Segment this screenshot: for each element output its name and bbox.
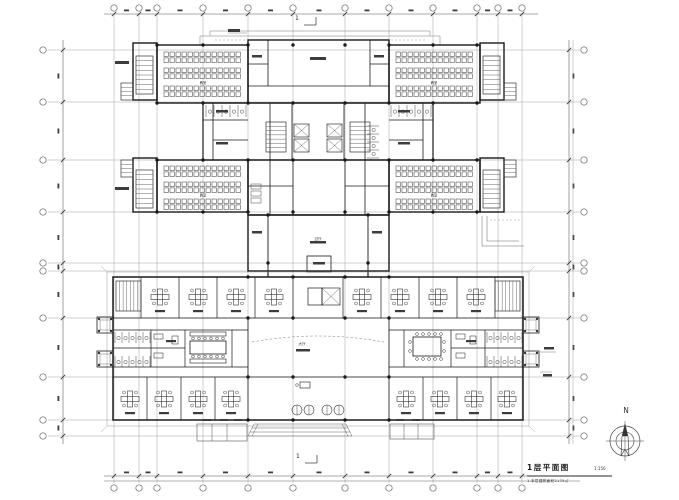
dim-text xyxy=(146,10,151,12)
desk xyxy=(206,188,210,193)
column xyxy=(266,261,269,264)
chair xyxy=(411,391,414,394)
desk xyxy=(462,74,466,79)
desk xyxy=(468,188,472,193)
desk xyxy=(164,92,168,97)
column xyxy=(475,158,478,161)
grid-bubble xyxy=(154,5,160,11)
desk xyxy=(236,182,240,187)
desk xyxy=(402,205,406,210)
porch-column xyxy=(524,330,526,332)
wc-fixture xyxy=(145,360,148,363)
grid-bubble xyxy=(40,157,46,163)
desk xyxy=(402,92,406,97)
porch-column xyxy=(524,364,526,366)
desk xyxy=(212,74,216,79)
classroom-label: 教室 xyxy=(431,193,437,198)
office-desk xyxy=(229,391,234,407)
desk xyxy=(426,58,430,63)
chair xyxy=(416,358,419,361)
desk xyxy=(438,205,442,210)
desk xyxy=(188,182,192,187)
stair-tower xyxy=(480,158,504,212)
desk xyxy=(468,74,472,79)
porch-column xyxy=(536,330,538,332)
desk xyxy=(176,52,180,57)
desk xyxy=(468,205,472,210)
wc-fixture xyxy=(372,152,375,155)
desk xyxy=(408,92,412,97)
office-desk xyxy=(151,295,169,300)
grid-bubble xyxy=(581,209,587,215)
column xyxy=(155,101,158,104)
desk xyxy=(396,166,400,171)
chair xyxy=(224,391,227,394)
chair xyxy=(399,391,402,394)
desk xyxy=(200,205,204,210)
desk xyxy=(200,86,204,91)
wc-fixture xyxy=(417,110,420,113)
text-smudge xyxy=(395,310,405,312)
chair xyxy=(479,404,482,407)
drawing-scale: 1:150 xyxy=(594,466,606,471)
fixture xyxy=(251,191,261,196)
chair xyxy=(422,333,425,336)
desk xyxy=(164,86,168,91)
text-smudge xyxy=(216,142,228,145)
chair xyxy=(169,404,172,407)
chair xyxy=(405,289,408,292)
desk xyxy=(444,68,448,73)
desk xyxy=(218,74,222,79)
desk xyxy=(212,199,216,204)
office-desk xyxy=(227,295,245,300)
desk xyxy=(432,205,436,210)
chair xyxy=(229,289,232,292)
grid-bubble xyxy=(581,157,587,163)
dim-text xyxy=(365,10,370,12)
porch-column xyxy=(536,352,538,354)
desk xyxy=(408,58,412,63)
desk xyxy=(236,58,240,63)
porch-column xyxy=(98,352,100,354)
desk xyxy=(426,188,430,193)
desk xyxy=(402,68,406,73)
column xyxy=(246,210,249,213)
desk xyxy=(444,86,448,91)
chair xyxy=(191,391,194,394)
column xyxy=(366,213,369,216)
grid-bubble xyxy=(581,47,587,53)
grid-bubble xyxy=(581,315,587,321)
chair xyxy=(355,302,358,305)
desk xyxy=(444,58,448,63)
column xyxy=(343,158,346,161)
column xyxy=(387,418,390,421)
desk xyxy=(432,58,436,63)
column xyxy=(387,210,390,213)
desk xyxy=(426,52,430,57)
grid-bubble xyxy=(290,485,296,491)
desk xyxy=(206,68,210,73)
desk xyxy=(468,52,472,57)
desk xyxy=(414,172,418,177)
desk xyxy=(218,86,222,91)
desk xyxy=(402,52,406,57)
desk xyxy=(194,182,198,187)
desk xyxy=(170,86,174,91)
desk xyxy=(420,74,424,79)
desk xyxy=(396,92,400,97)
text-smudge xyxy=(226,412,236,414)
column xyxy=(291,316,294,319)
desk xyxy=(402,74,406,79)
desk xyxy=(236,199,240,204)
porch-column xyxy=(524,318,526,320)
chair xyxy=(153,302,156,305)
desk xyxy=(164,74,168,79)
wc-fixture xyxy=(503,336,506,339)
desk xyxy=(176,74,180,79)
wc-fixture xyxy=(496,336,499,339)
column xyxy=(387,375,390,378)
desk xyxy=(236,74,240,79)
desk xyxy=(182,172,186,177)
column xyxy=(155,43,158,46)
grid-bubble xyxy=(495,485,501,491)
desk xyxy=(182,188,186,193)
desk xyxy=(188,188,192,193)
chair xyxy=(279,302,282,305)
desk xyxy=(450,86,454,91)
wc-fixture xyxy=(117,360,120,363)
desk xyxy=(414,188,418,193)
dim-text xyxy=(485,10,490,12)
chair xyxy=(169,391,172,394)
desk xyxy=(224,86,228,91)
chair xyxy=(135,404,138,407)
desk xyxy=(420,58,424,63)
grid-bubble xyxy=(154,485,160,491)
desk xyxy=(164,68,168,73)
desk xyxy=(396,205,400,210)
desk xyxy=(236,86,240,91)
text-smudge xyxy=(433,310,443,312)
dim-text xyxy=(58,265,60,270)
desk xyxy=(432,68,436,73)
grid-bubble xyxy=(581,433,587,439)
wc-fixture xyxy=(208,110,211,113)
column xyxy=(291,43,294,46)
column xyxy=(201,43,204,46)
grid-bubble xyxy=(200,485,206,491)
desk xyxy=(176,68,180,73)
drawing-title: 1层平面图 xyxy=(527,462,570,473)
column xyxy=(343,101,346,104)
desk xyxy=(468,199,472,204)
desk xyxy=(438,74,442,79)
desk xyxy=(420,205,424,210)
desk xyxy=(236,166,240,171)
desk xyxy=(218,58,222,63)
chair xyxy=(165,289,168,292)
desk xyxy=(420,52,424,57)
text-smudge xyxy=(220,419,228,421)
desk xyxy=(444,52,448,57)
chair xyxy=(165,302,168,305)
desk xyxy=(462,92,466,97)
desk xyxy=(456,58,460,63)
section-marker-top: 1 xyxy=(295,15,299,22)
desk xyxy=(224,92,228,97)
desk xyxy=(408,86,412,91)
desk xyxy=(438,182,442,187)
desk xyxy=(182,74,186,79)
text-smudge xyxy=(310,241,326,244)
porch-column xyxy=(536,364,538,366)
chair xyxy=(467,391,470,394)
desk xyxy=(188,58,192,63)
desk xyxy=(188,52,192,57)
desk xyxy=(462,205,466,210)
grid-bubble xyxy=(111,5,117,11)
grid-bubble xyxy=(40,209,46,215)
dot xyxy=(296,384,299,387)
desk xyxy=(450,58,454,63)
column xyxy=(387,43,390,46)
grid-bubble xyxy=(245,485,251,491)
office-desk xyxy=(467,295,485,300)
desk xyxy=(176,172,180,177)
side-steps xyxy=(197,424,247,441)
chair xyxy=(267,289,270,292)
chair xyxy=(467,404,470,407)
dim-text xyxy=(58,396,60,401)
chair xyxy=(443,341,446,344)
desk xyxy=(462,86,466,91)
desk xyxy=(462,182,466,187)
dim-text xyxy=(58,345,60,350)
fixture xyxy=(154,353,163,358)
desk xyxy=(194,68,198,73)
office-desk xyxy=(265,295,283,300)
dim-text xyxy=(58,74,60,79)
desk xyxy=(200,172,204,177)
dim-text xyxy=(453,472,458,474)
desk xyxy=(432,188,436,193)
desk xyxy=(230,86,234,91)
office-desk xyxy=(397,397,415,402)
desk xyxy=(402,58,406,63)
desk xyxy=(468,86,472,91)
desk xyxy=(182,92,186,97)
dim-text xyxy=(268,472,273,474)
office-desk xyxy=(189,295,207,300)
chair xyxy=(367,302,370,305)
desk xyxy=(444,205,448,210)
desk xyxy=(444,166,448,171)
conference-table xyxy=(190,341,226,354)
chair xyxy=(367,289,370,292)
desk xyxy=(414,86,418,91)
grid-bubble xyxy=(245,5,251,11)
fixture xyxy=(251,184,261,189)
desk xyxy=(414,92,418,97)
desk xyxy=(396,199,400,204)
column xyxy=(201,158,204,161)
office-desk xyxy=(189,397,207,402)
grid-bubble xyxy=(581,374,587,380)
wc-fixture xyxy=(372,144,375,147)
chair xyxy=(393,302,396,305)
office-desk xyxy=(498,397,516,402)
dim-text xyxy=(317,472,322,474)
fixture xyxy=(154,334,163,339)
dim-text xyxy=(58,426,60,431)
desk xyxy=(420,92,424,97)
desk xyxy=(224,172,228,177)
office-desk xyxy=(404,391,409,407)
text-smudge xyxy=(313,262,325,265)
desk xyxy=(182,52,186,57)
dim-text xyxy=(485,472,490,474)
column xyxy=(201,210,204,213)
dim-text xyxy=(573,129,575,134)
desk xyxy=(438,199,442,204)
column xyxy=(475,101,478,104)
porch-column xyxy=(536,318,538,320)
desk xyxy=(438,86,442,91)
desk xyxy=(170,74,174,79)
desk xyxy=(426,199,430,204)
chair xyxy=(409,350,412,353)
office-desk xyxy=(465,397,483,402)
desk xyxy=(402,86,406,91)
desk xyxy=(200,58,204,63)
text-smudge xyxy=(398,110,410,113)
text-smudge xyxy=(159,412,169,414)
wc-fixture xyxy=(372,136,375,139)
text-smudge xyxy=(412,419,420,421)
chair xyxy=(469,302,472,305)
grid-bubble xyxy=(342,5,348,11)
office-desk xyxy=(438,391,443,407)
chair xyxy=(469,289,472,292)
desk xyxy=(176,199,180,204)
chair xyxy=(216,337,219,340)
desk xyxy=(456,68,460,73)
desk xyxy=(218,172,222,177)
column xyxy=(155,210,158,213)
porch-column xyxy=(98,330,100,332)
column xyxy=(246,101,249,104)
office-desk xyxy=(155,397,173,402)
office-desk xyxy=(121,397,139,402)
desk xyxy=(462,188,466,193)
grid-bubble xyxy=(495,5,501,11)
desk xyxy=(456,205,460,210)
dim-text xyxy=(573,426,575,431)
desk xyxy=(206,172,210,177)
column xyxy=(387,275,390,278)
desk xyxy=(450,188,454,193)
desk xyxy=(432,86,436,91)
text-smudge xyxy=(296,349,310,352)
column xyxy=(343,275,346,278)
text-smudge xyxy=(466,340,476,342)
desk xyxy=(164,205,168,210)
chair xyxy=(229,302,232,305)
porch-inner xyxy=(100,320,110,330)
desk xyxy=(468,172,472,177)
chair xyxy=(123,404,126,407)
grid-bubble xyxy=(40,47,46,53)
chair xyxy=(443,302,446,305)
desk xyxy=(408,74,412,79)
column xyxy=(155,158,158,161)
column xyxy=(343,210,346,213)
dim-text xyxy=(409,472,414,474)
desk xyxy=(212,58,216,63)
desk xyxy=(408,68,412,73)
desk xyxy=(218,68,222,73)
chair xyxy=(236,391,239,394)
wc-fixture xyxy=(240,110,243,113)
office-desk xyxy=(360,289,365,305)
column xyxy=(343,418,346,421)
desk xyxy=(426,205,430,210)
porch-inner xyxy=(100,354,110,364)
chair xyxy=(191,404,194,407)
text-smudge xyxy=(471,310,481,312)
desk xyxy=(420,86,424,91)
desk xyxy=(212,52,216,57)
desk xyxy=(230,172,234,177)
desk xyxy=(212,182,216,187)
desk xyxy=(230,199,234,204)
bench xyxy=(190,332,226,336)
desk xyxy=(414,68,418,73)
column xyxy=(343,375,346,378)
desk xyxy=(426,182,430,187)
chair xyxy=(224,404,227,407)
office-desk xyxy=(398,289,403,305)
chair xyxy=(192,337,195,340)
desk xyxy=(188,205,192,210)
grid-bubble xyxy=(474,5,480,11)
desk xyxy=(444,188,448,193)
desk xyxy=(408,199,412,204)
desk xyxy=(170,92,174,97)
desk xyxy=(224,52,228,57)
column xyxy=(431,101,434,104)
desk xyxy=(426,68,430,73)
office-desk xyxy=(436,289,441,305)
desk xyxy=(462,172,466,177)
desk xyxy=(408,52,412,57)
office-desk xyxy=(429,295,447,300)
chair xyxy=(434,333,437,336)
text-smudge xyxy=(502,412,512,414)
desk xyxy=(188,172,192,177)
chair xyxy=(500,391,503,394)
desk xyxy=(224,182,228,187)
stair-tower xyxy=(133,158,157,212)
dim-text xyxy=(58,129,60,134)
desk xyxy=(456,86,460,91)
wc-fixture xyxy=(138,360,141,363)
desk xyxy=(194,92,198,97)
